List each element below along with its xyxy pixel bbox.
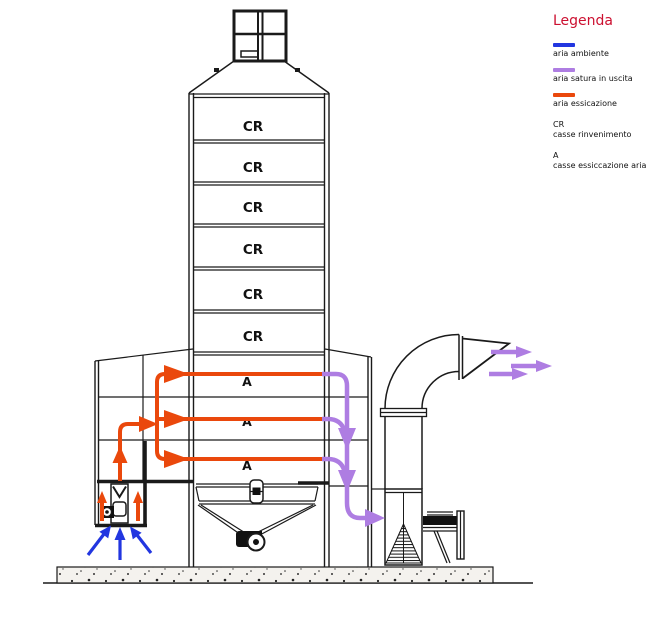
legend-abbr-a-desc: casse essiccazione aria xyxy=(553,161,672,171)
metering-valve xyxy=(250,480,263,503)
saturated-air-arrowheads xyxy=(338,346,552,527)
legend-title: Legenda xyxy=(553,13,672,29)
burner-unit xyxy=(101,484,128,523)
legend-label-ambient: aria ambiente xyxy=(553,49,672,59)
legend-item-ambient: aria ambiente xyxy=(553,43,672,59)
legend-item-saturated: aria satura in uscita xyxy=(553,68,672,84)
ambient-air-swatch xyxy=(553,43,577,48)
fan-motor xyxy=(423,511,464,563)
saturated-air-swatch xyxy=(553,68,577,73)
legend-item-drying: aria essicazione xyxy=(553,93,672,109)
concrete-slab xyxy=(57,567,493,583)
legend-label-saturated: aria satura in uscita xyxy=(553,74,672,84)
cr-label-3: CR xyxy=(243,200,264,216)
legend-abbr-cr: CR casse rinvenimento xyxy=(553,120,672,140)
dryer-schematic-page: CR CR CR CR CR CR A A A xyxy=(0,0,672,620)
legend-abbr-cr-code: CR xyxy=(553,120,672,130)
a-label-1: A xyxy=(242,374,252,389)
legend-abbr-cr-desc: casse rinvenimento xyxy=(553,130,672,140)
drying-air-swatch xyxy=(553,93,577,98)
cr-label-1: CR xyxy=(243,119,264,135)
tower-hood xyxy=(189,61,329,93)
exhaust-duct xyxy=(381,335,510,490)
legend-label-drying: aria essicazione xyxy=(553,99,672,109)
legend: Legenda aria ambiente aria satura in usc… xyxy=(553,13,672,171)
cr-label-4: CR xyxy=(243,242,264,258)
a-label-2: A xyxy=(242,414,252,429)
discharge-auger xyxy=(236,531,265,551)
cr-label-5: CR xyxy=(243,287,264,303)
cr-label-6: CR xyxy=(243,329,264,345)
top-inlet-box xyxy=(234,11,286,61)
fan-housing xyxy=(385,489,422,565)
structure-outline xyxy=(43,11,533,583)
cr-label-2: CR xyxy=(243,160,264,176)
saturated-air-lines xyxy=(322,352,537,518)
legend-abbr-a-code: A xyxy=(553,151,672,161)
legend-abbr-a: A casse essiccazione aria xyxy=(553,151,672,171)
ambient-air-arrowheads xyxy=(99,526,141,541)
